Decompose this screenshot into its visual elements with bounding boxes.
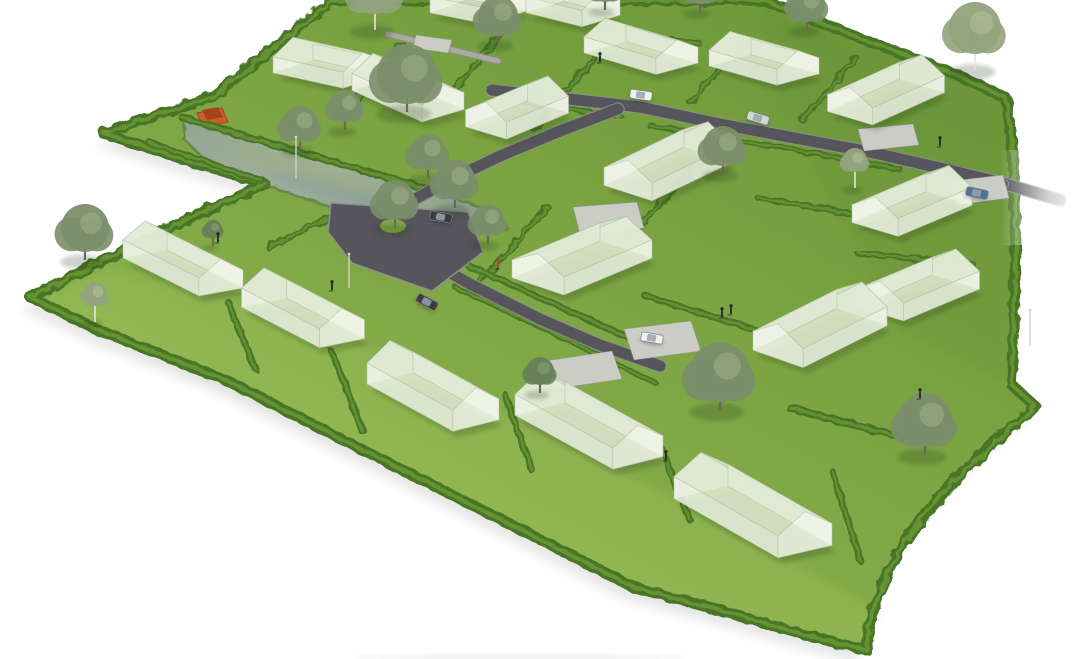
road-exit-fade (1000, 150, 1089, 245)
tree-canopy-highlight (451, 167, 469, 185)
person-shadow (727, 314, 732, 316)
person-shadow (718, 317, 723, 319)
tree-shadow (328, 127, 357, 137)
tree-canopy-highlight (485, 210, 499, 224)
tree-shadow (60, 255, 103, 269)
tree-canopy-highlight (211, 223, 219, 231)
tree-canopy-highlight (342, 96, 356, 110)
tree-shadow (702, 170, 738, 182)
person-shadow (662, 460, 667, 462)
lamp-post-top (348, 253, 351, 256)
person-shadow (328, 290, 333, 292)
bottom-edge-shadow (350, 654, 690, 659)
tree-shadow (788, 27, 820, 38)
tree-shadow (949, 64, 996, 80)
person-head (598, 52, 601, 55)
person-shadow (494, 268, 499, 270)
person-head (729, 304, 732, 307)
tree-canopy-highlight (93, 286, 104, 297)
person-head (720, 307, 723, 310)
car-cabin (636, 91, 646, 99)
person-head (330, 280, 333, 283)
tree-shadow (841, 186, 863, 193)
person-shadow (936, 146, 941, 148)
tree-canopy-highlight (401, 55, 428, 82)
tree-canopy-highlight (296, 112, 312, 128)
tree-shadow (202, 245, 218, 250)
tree-shadow (690, 403, 744, 421)
tree-shadow (589, 8, 616, 17)
person-head (918, 388, 921, 391)
tree-canopy-highlight (424, 140, 440, 156)
person-head (496, 258, 499, 261)
tree-shadow (684, 10, 711, 19)
tree-canopy-highlight (719, 133, 737, 151)
person-shadow (596, 62, 601, 64)
person-shadow (916, 398, 921, 400)
tree-shadow (524, 391, 549, 399)
tree-shadow (898, 449, 947, 465)
tree-shadow (81, 320, 103, 327)
lamp-post-top (1029, 309, 1032, 312)
tree-canopy-highlight (714, 353, 741, 380)
person-head (664, 450, 667, 453)
tree-shadow (477, 40, 513, 52)
tree-canopy-highlight (920, 402, 944, 426)
tree-shadow (281, 147, 313, 158)
person-head (938, 136, 941, 139)
tree-canopy-highlight (494, 3, 512, 21)
tree-canopy-highlight (853, 152, 864, 163)
tree-canopy-highlight (970, 11, 993, 34)
person-head (216, 232, 219, 235)
site-plan-render (0, 0, 1089, 659)
tree-canopy-highlight (80, 212, 102, 234)
tree-shadow (377, 105, 431, 123)
tree-shadow (350, 25, 393, 39)
tree-canopy-highlight (391, 187, 409, 205)
person-shadow (214, 242, 219, 244)
lamp-post-top (295, 136, 298, 139)
site-render-canvas (0, 0, 1089, 659)
tree-shadow (374, 224, 410, 236)
tree-shadow (471, 241, 500, 251)
tree-canopy-highlight (537, 362, 550, 375)
